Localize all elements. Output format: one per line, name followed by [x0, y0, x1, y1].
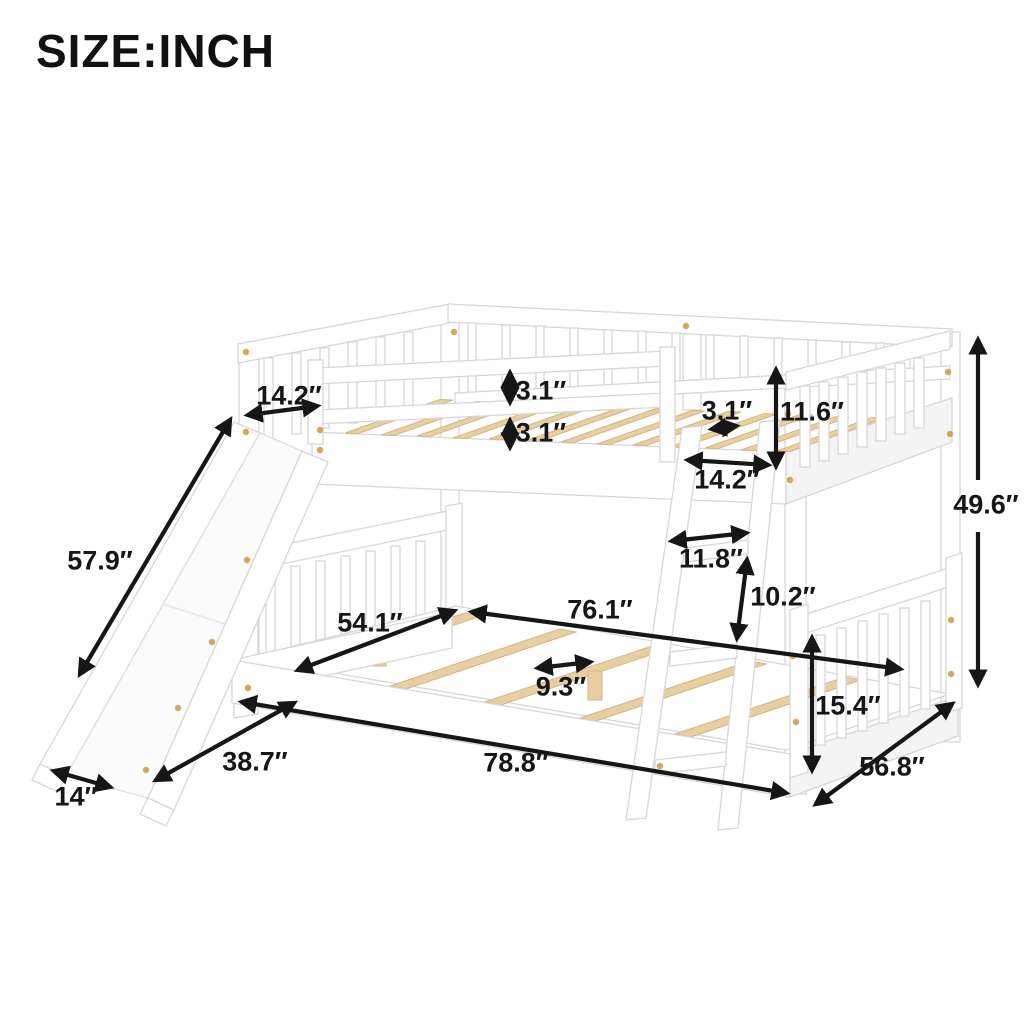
dim-label-slide-top-opening-width: 14.2″ — [256, 383, 321, 410]
dim-label-ladder-opening-width: 14.2″ — [694, 467, 759, 494]
dim-label-guardrail-gap-top: 3.1″ — [516, 378, 566, 405]
dim-label-slide-width: 14″ — [55, 784, 98, 811]
size-diagram-page: SIZE:INCH — [0, 0, 1024, 1024]
dim-label-upper-slat-spacing: 3.1″ — [702, 398, 752, 425]
dim-label-ladder-rung-spacing: 10.2″ — [750, 584, 815, 611]
dim-label-lower-bed-width: 54.1″ — [337, 610, 402, 637]
dim-label-upper-guardrail-height: 11.6″ — [780, 399, 844, 426]
dim-label-guardrail-gap-bottom: 3.1″ — [516, 420, 566, 447]
dim-label-overall-length: 78.8″ — [483, 750, 548, 777]
dim-label-overall-height: 49.6″ — [953, 492, 1018, 519]
dim-label-lower-slat-spacing: 9.3″ — [536, 674, 586, 701]
dim-label-lower-bed-length: 76.1″ — [567, 597, 632, 624]
dim-label-ladder-width: 11.8″ — [679, 546, 743, 573]
upper-bunk — [238, 304, 952, 504]
lower-bunk — [232, 503, 962, 797]
dim-label-lower-bed-height: 15.4″ — [815, 693, 880, 720]
bunk-bed-illustration — [0, 0, 1024, 1024]
dim-label-overall-depth: 56.8″ — [859, 754, 924, 781]
dim-label-slide-footprint-depth: 38.7″ — [222, 749, 287, 776]
dim-label-slide-length: 57.9″ — [67, 548, 132, 575]
